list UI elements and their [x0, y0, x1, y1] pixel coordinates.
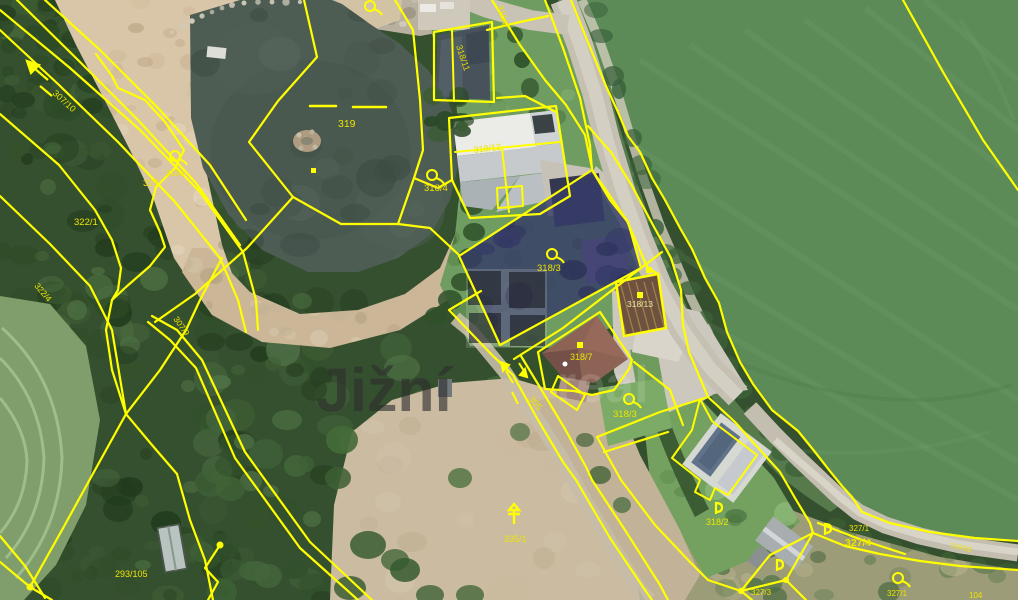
svg-text:318/4: 318/4 — [424, 183, 448, 194]
svg-text:322/1: 322/1 — [74, 217, 98, 228]
svg-text:104: 104 — [969, 591, 983, 600]
svg-text:327/1: 327/1 — [849, 524, 870, 533]
svg-text:327/4: 327/4 — [845, 537, 871, 549]
svg-text:327/1: 327/1 — [887, 589, 908, 598]
svg-text:318/13: 318/13 — [627, 299, 653, 309]
svg-text:327: 327 — [143, 178, 159, 189]
svg-text:293/105: 293/105 — [115, 569, 148, 579]
svg-text:335/1: 335/1 — [504, 534, 527, 544]
svg-text:318/3: 318/3 — [613, 409, 637, 420]
svg-text:327/3: 327/3 — [751, 588, 772, 597]
svg-text:3183: 3183 — [166, 169, 184, 178]
svg-text:Jižní: Jižní — [316, 356, 454, 424]
svg-text:318/2: 318/2 — [706, 517, 729, 527]
svg-text:318/7: 318/7 — [570, 352, 593, 362]
svg-text:319: 319 — [338, 118, 356, 130]
svg-text:318/3: 318/3 — [537, 263, 561, 274]
